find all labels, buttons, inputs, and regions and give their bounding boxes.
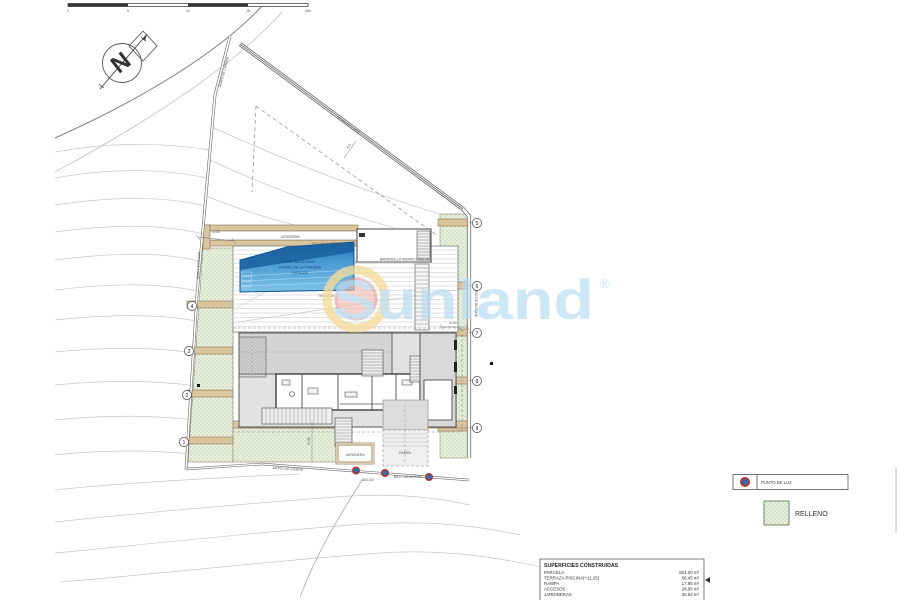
muro-linde-top-label: MURO DE LINDE [337, 116, 362, 136]
table-row-label: JARDINERAS [544, 592, 572, 597]
baliza-label: BALIZA [362, 478, 374, 482]
table-row-label: PARCELA [544, 570, 564, 575]
jardinera-box: JARDINERA [336, 443, 374, 464]
marker-3: 3 [188, 349, 191, 355]
scale-label-5: 5 [127, 9, 129, 13]
watermark: Sunland ® [327, 268, 610, 331]
muro-linde-left-label: MURO DE LINDE [196, 252, 201, 280]
relleno-band-left [188, 248, 233, 462]
survey-point-left [197, 384, 200, 387]
table-row-value: 30.54 m² [682, 592, 700, 597]
marker-4: 4 [191, 304, 194, 310]
north-arrow-icon: N [99, 31, 157, 89]
marker-9: 9 [476, 426, 479, 432]
dim-top-left: 4.00 [212, 230, 219, 234]
marker-5: 5 [476, 221, 479, 227]
marker-8: 8 [476, 379, 479, 385]
table-row-label: TERRAZA PISCINA(+11.25) [544, 576, 600, 581]
marker-2: 2 [186, 393, 189, 399]
jardinera-bottom-label: JARDINERA [345, 453, 365, 457]
muro-cierre-label: MURO DE CIERRE [273, 466, 304, 472]
table-row-value: 17.95 m² [682, 581, 700, 586]
scale-label-15: 15 [246, 9, 250, 13]
pool-label-2: A NIVEL DE LA VIVIENDA [279, 266, 322, 270]
bajo-motor-label: BAJO DE MOTOR [394, 475, 423, 479]
pool-label-1: PISCINA 32.00 m² [285, 260, 315, 264]
surfaces-table: SUPERFICIES CONSTRUIDAS PARCELA 824.00 m… [540, 559, 710, 600]
scale-bar: 0 5 10 15 20m [67, 4, 311, 14]
scale-label-0: 0 [67, 9, 69, 13]
table-title: SUPERFICIES CONSTRUIDAS [544, 563, 619, 569]
marker-1: 1 [183, 440, 186, 446]
marker-7: 7 [476, 331, 479, 337]
punto-de-luz-label: PUNTO DE LUZ [761, 480, 792, 485]
light-point-icon [353, 467, 359, 473]
stair-dim-label: 5.00 [307, 437, 311, 444]
jardinera-top-label: JARDINERA [280, 235, 300, 239]
table-row-value: 28.95 m² [682, 587, 700, 592]
road-curve [55, 6, 262, 138]
legend: PUNTO DE LUZ RELLENO [733, 468, 896, 533]
barandilla-label: BARANDILLA HIERRO-CRISTAL [380, 258, 430, 262]
table-row-label: ACCESOS [544, 587, 566, 592]
pool-label-3: 2 FOCOS [292, 271, 308, 275]
punto-de-luz-icon [741, 478, 749, 486]
scale-label-20: 20m [305, 9, 312, 13]
registered-mark: ® [600, 276, 610, 291]
table-row-value: 56.45 m² [682, 576, 700, 581]
watermark-text: Sunland [332, 268, 594, 331]
site-plan-page: 0 5 10 15 20m N [0, 0, 899, 600]
table-row-label: RAMPA [544, 581, 559, 586]
survey-point-right [490, 362, 493, 365]
light-point-icon [426, 474, 432, 480]
roof-dim-leader [344, 141, 356, 158]
table-row-value: 824.00 m² [679, 570, 699, 575]
upper-annex: BARANDILLA HIERRO-CRISTAL [355, 229, 432, 262]
solarium-label: SOLARIUM TECHO [312, 242, 343, 246]
light-point-icon [382, 470, 388, 476]
scale-label-10: 10 [186, 9, 190, 13]
relleno-label: RELLENO [795, 511, 828, 518]
rampa-label: RAMPA [399, 451, 412, 455]
ramp: RAMPA [383, 400, 428, 466]
roof-dim-label: 4.0 [346, 143, 352, 150]
relleno-swatch [764, 501, 789, 525]
relleno-band-bottom [233, 428, 337, 462]
site-plan-drawing: 0 5 10 15 20m N [0, 0, 899, 600]
